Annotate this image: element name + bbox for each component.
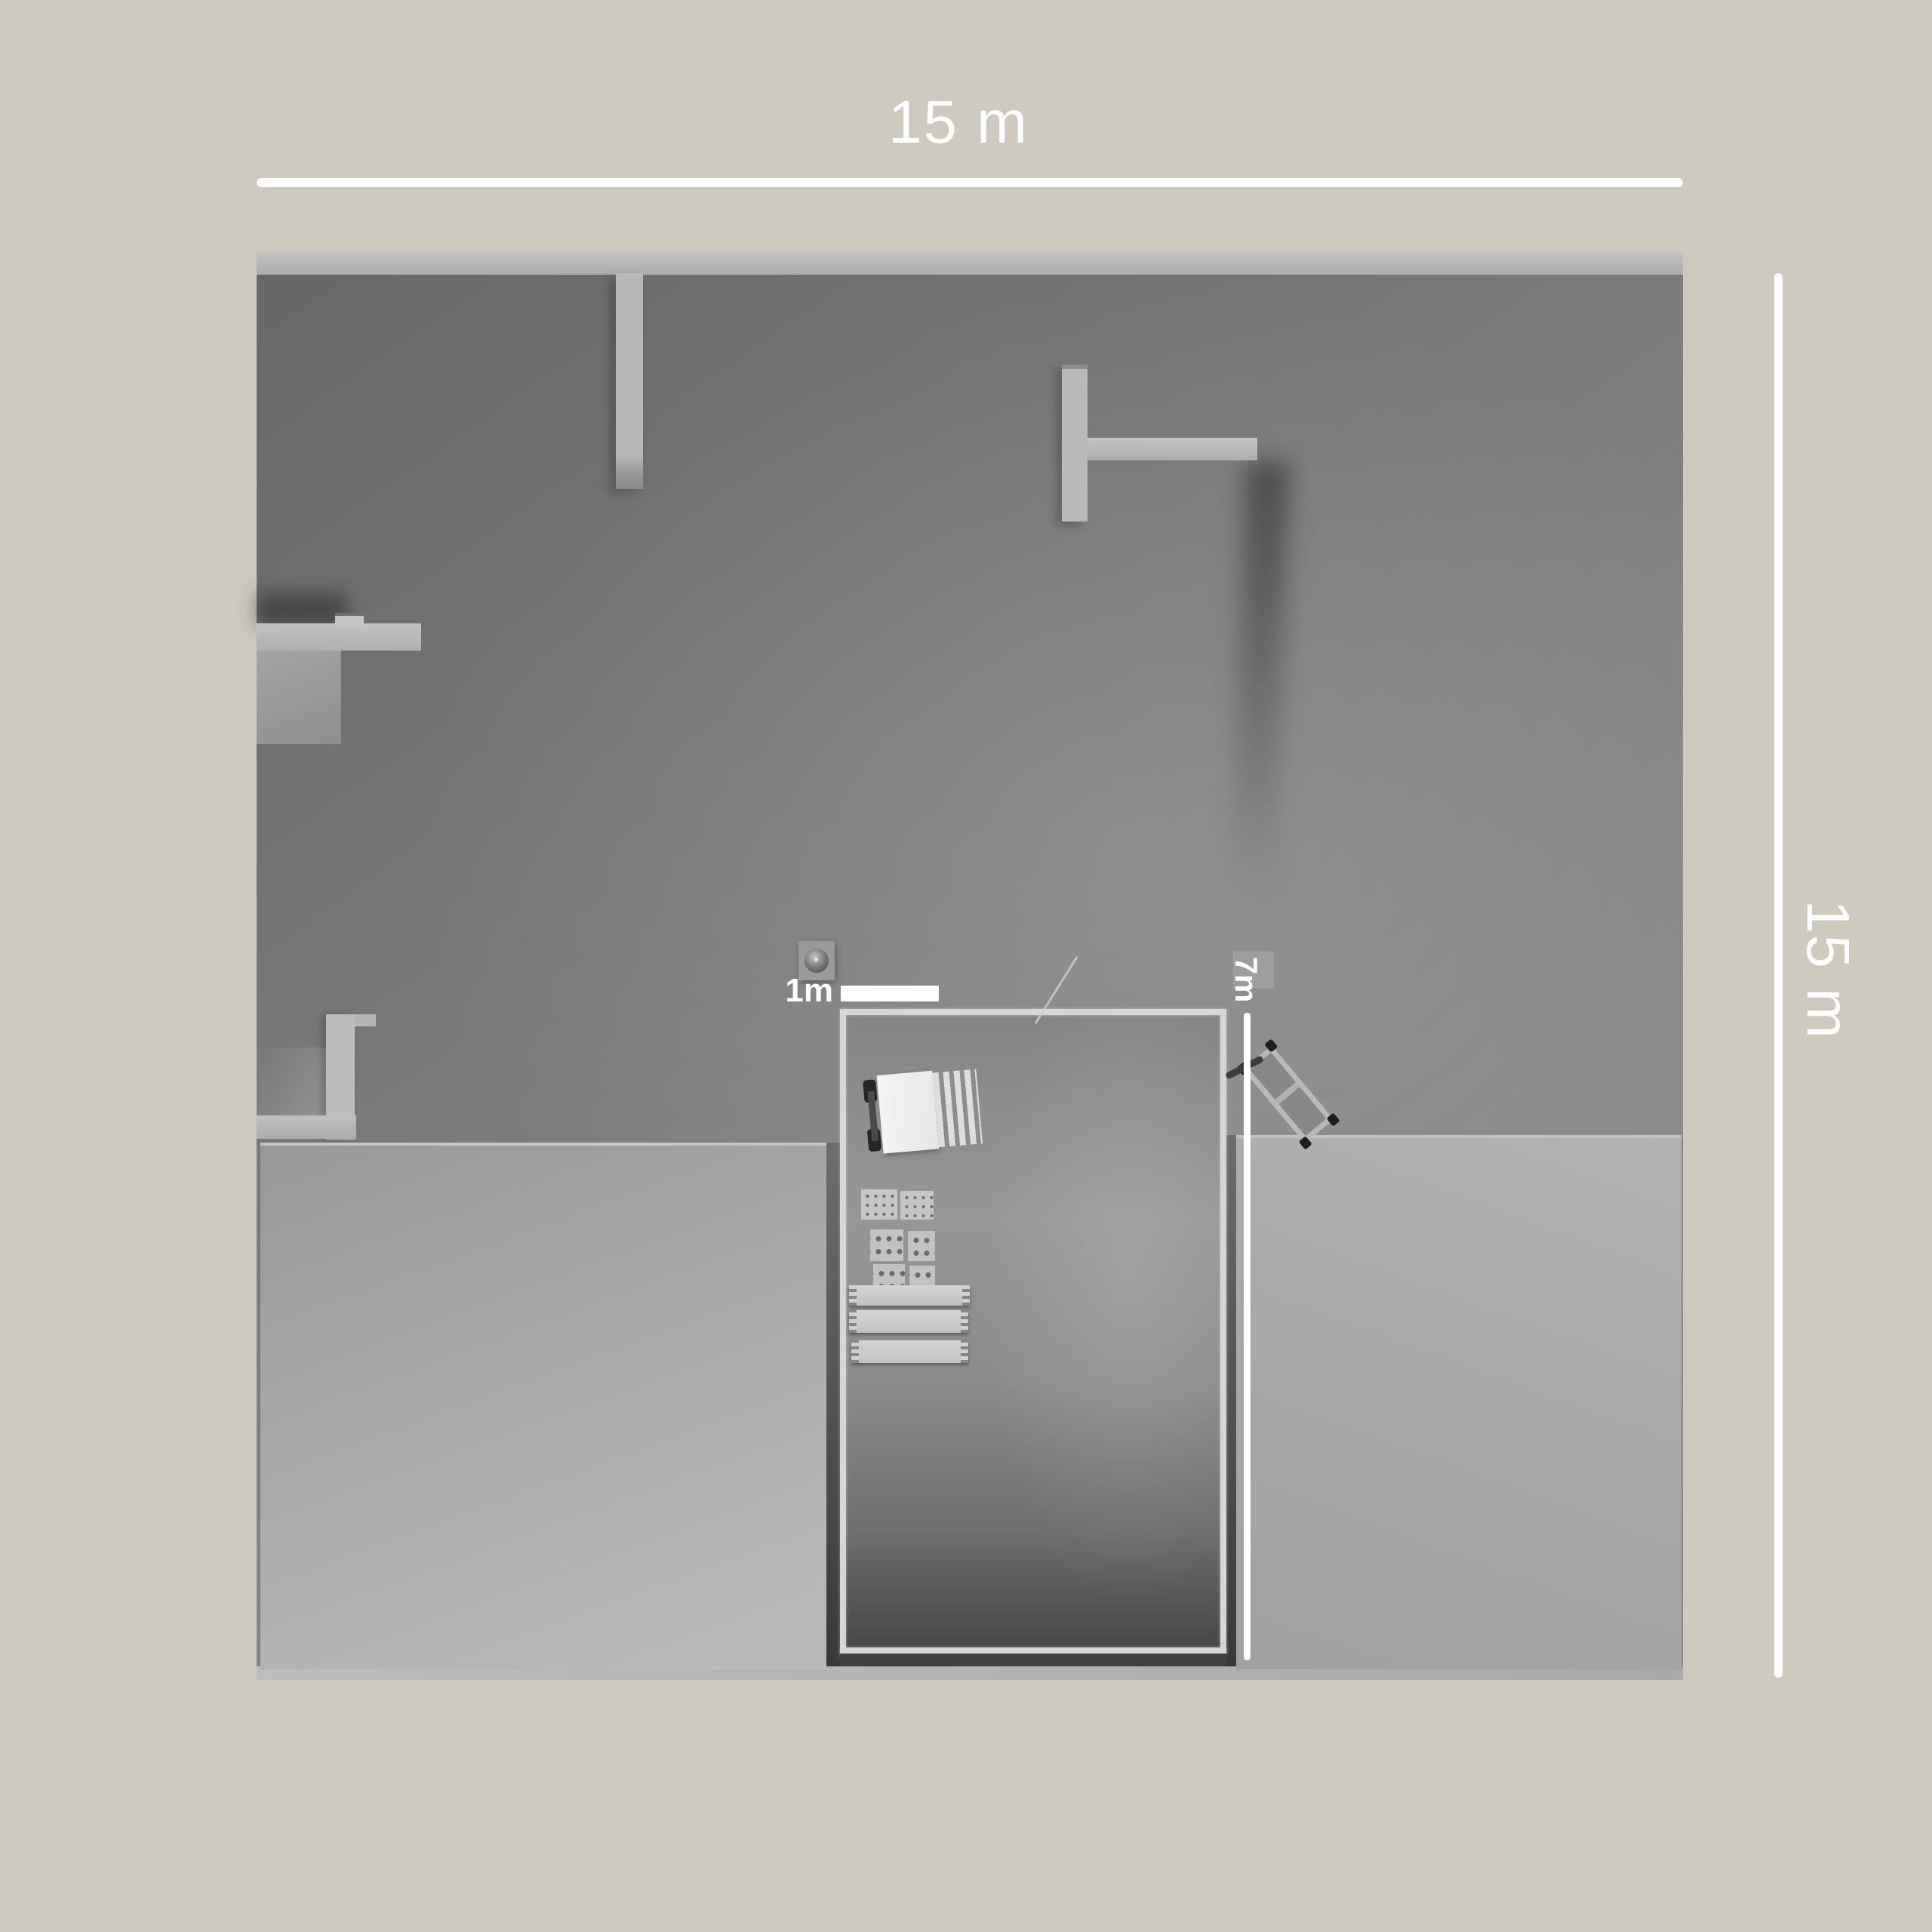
left-shelf-return xyxy=(335,613,364,628)
right-corridor-gap xyxy=(1226,1135,1236,1666)
scale-1m-label: 1m xyxy=(755,972,833,1010)
forklift-forks xyxy=(933,1069,983,1148)
7m-measure-label: 7m xyxy=(1225,904,1267,1055)
right-height-dimension-label: 15 m xyxy=(1790,864,1866,1075)
top-width-dimension-label: 15 m xyxy=(815,88,1102,157)
t-wall-shadow xyxy=(1230,460,1291,898)
top-wall-stub xyxy=(616,273,643,489)
plank-stack-item xyxy=(849,1285,970,1306)
stud-crate-large xyxy=(907,1230,936,1262)
left-storage-block xyxy=(260,1143,826,1669)
left-shelf-shadow xyxy=(257,593,347,626)
left-corridor-gap xyxy=(826,1143,840,1666)
7m-measure-line xyxy=(1244,1013,1251,1660)
enclosure-wall-right xyxy=(1220,1009,1226,1657)
forklift xyxy=(862,1067,983,1157)
enclosure-bottom-gap xyxy=(840,1654,1226,1666)
top-width-dimension-line xyxy=(257,178,1683,187)
plank-stack-item xyxy=(849,1310,968,1333)
right-height-dimension-line xyxy=(1774,273,1783,1678)
right-storage-block xyxy=(1236,1135,1681,1669)
dome-sensor-icon xyxy=(804,949,829,973)
left-l-wall-recess xyxy=(257,1048,328,1118)
t-wall-vertical xyxy=(1062,365,1088,521)
left-shelf-side xyxy=(257,651,341,744)
top-wall xyxy=(257,252,1683,275)
plank-stack-item xyxy=(851,1340,968,1363)
room-floor: 1m xyxy=(257,252,1683,1680)
forklift-body xyxy=(877,1071,940,1154)
t-wall-horizontal xyxy=(1087,438,1257,460)
enclosure-wall-left xyxy=(840,1009,846,1657)
scale-1m-bar xyxy=(841,986,939,1001)
stud-crate-small xyxy=(900,1190,934,1220)
left-l-wall-stub xyxy=(355,1014,376,1026)
floorplan-render: 15 m 15 m xyxy=(0,0,1932,1932)
enclosure-wall-top xyxy=(846,1009,1220,1015)
enclosure-wall-bottom xyxy=(840,1647,1226,1654)
stud-crate-large xyxy=(869,1229,904,1262)
stud-crate-small xyxy=(860,1189,898,1220)
left-l-wall-horizontal xyxy=(257,1115,356,1139)
